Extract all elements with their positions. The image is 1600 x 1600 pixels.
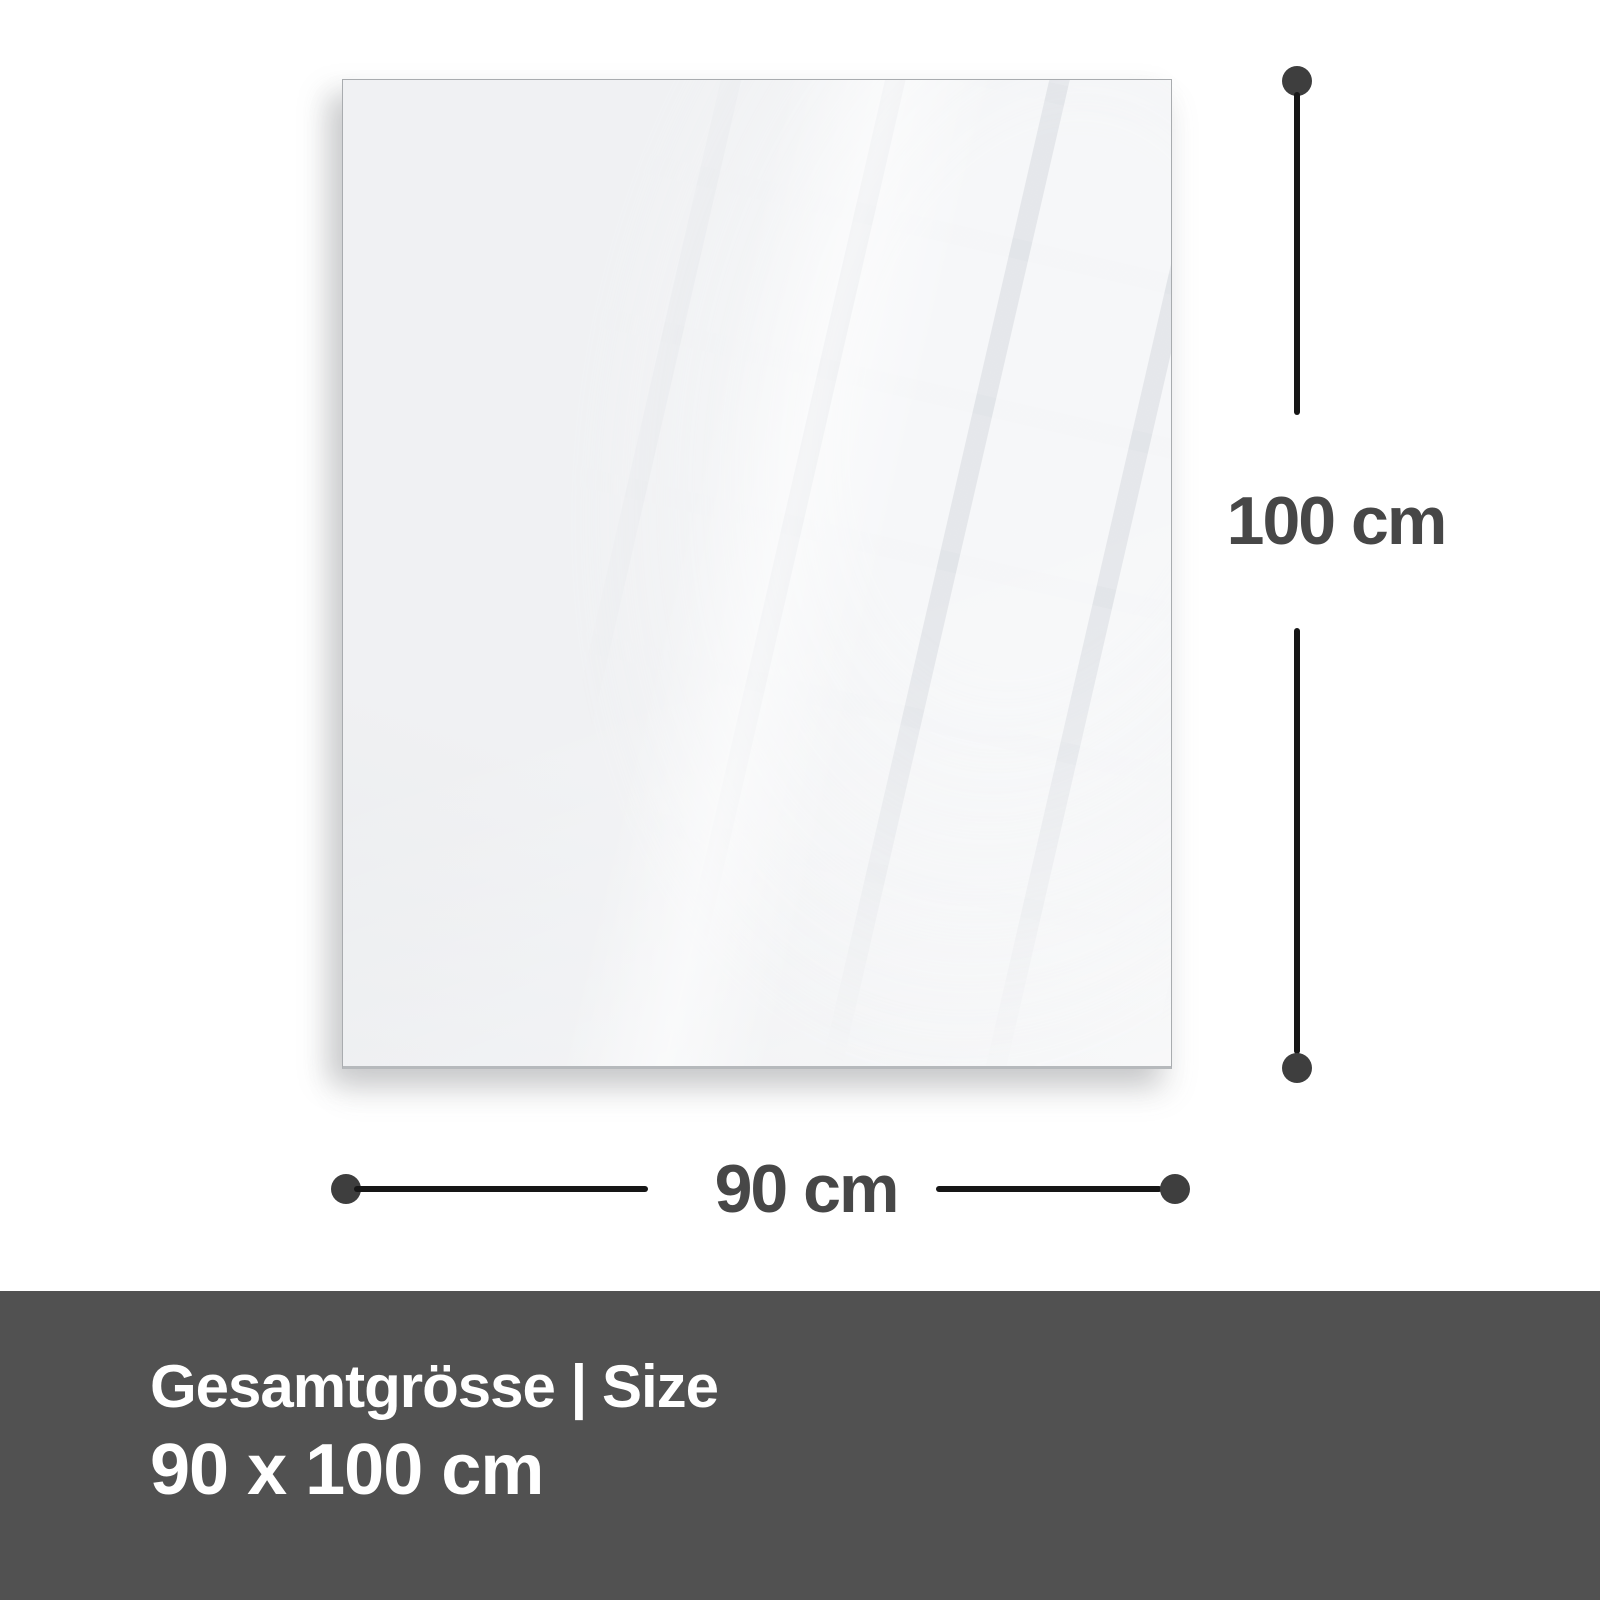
glass-panel-preview bbox=[342, 79, 1172, 1069]
dimension-endpoint-dot-bottom bbox=[1282, 1053, 1312, 1083]
dimension-endpoint-dot-right bbox=[1160, 1174, 1190, 1204]
height-dimension-line-lower bbox=[1294, 628, 1300, 1054]
width-dimension-label: 90 cm bbox=[656, 1154, 956, 1224]
width-dimension-line-left bbox=[354, 1186, 648, 1192]
footer-size-value: 90 x 100 cm bbox=[150, 1429, 543, 1511]
footer-title: Gesamtgrösse | Size bbox=[150, 1352, 718, 1421]
product-size-diagram: 100 cm 90 cm Gesamtgrösse | Size 90 x 10… bbox=[0, 0, 1600, 1600]
height-dimension-label: 100 cm bbox=[1186, 486, 1486, 556]
glass-sheen bbox=[343, 80, 1171, 1066]
height-dimension-line-upper bbox=[1294, 92, 1300, 415]
width-dimension-line-right bbox=[936, 1186, 1162, 1192]
